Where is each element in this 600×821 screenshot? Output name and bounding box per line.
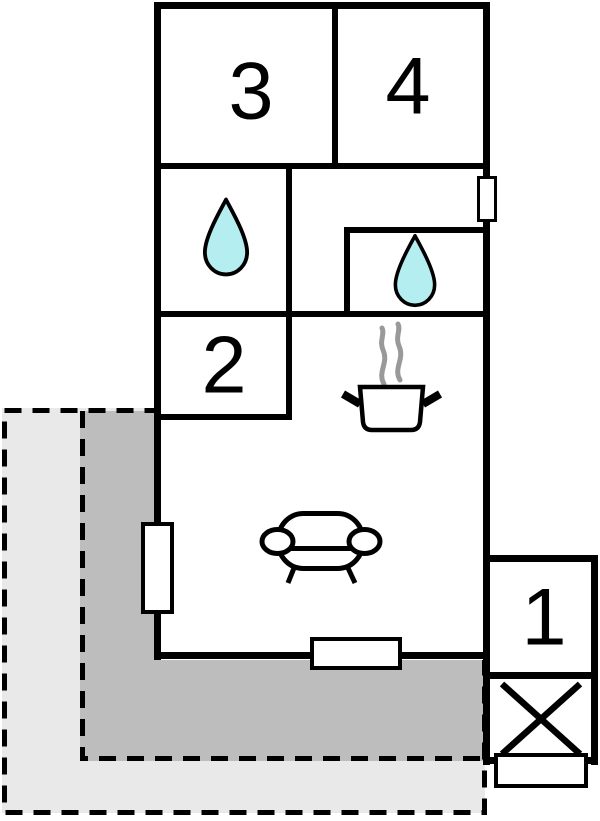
room-label-2: 2 — [201, 326, 246, 407]
room-label-4: 4 — [385, 47, 430, 128]
wall-room2-bottom — [158, 414, 292, 420]
floorplan-canvas: 3 4 2 1 — [0, 0, 600, 821]
wall-room2-right — [286, 311, 292, 420]
wall-room1-right — [591, 555, 598, 765]
wall-room3-room4-divider — [332, 2, 338, 169]
cooking-pot-icon — [338, 320, 446, 432]
wall-mid-floor — [158, 311, 486, 317]
pot-body — [360, 387, 423, 430]
wall-room1-left — [483, 555, 490, 765]
wall-room1-bottom — [483, 672, 598, 679]
wall-bedrooms-floor — [158, 163, 486, 169]
sofa-leg-left — [288, 568, 294, 583]
wall-room1-top — [483, 555, 598, 562]
window-marker-right-wall — [477, 176, 497, 222]
wall-outer-top — [154, 2, 490, 9]
room-label-3: 3 — [228, 52, 273, 133]
steam-icon — [382, 324, 401, 384]
room-label-1: 1 — [521, 578, 566, 659]
wall-bathroom1-right — [286, 163, 292, 317]
water-drop-shape — [205, 200, 247, 275]
pot-handle-right — [423, 394, 440, 404]
door-marker-bottom-wall — [310, 637, 402, 670]
crossed-box-icon — [490, 679, 591, 759]
water-drop-icon — [202, 196, 250, 278]
water-drop-icon — [392, 233, 438, 308]
water-drop-shape — [395, 236, 434, 306]
sofa-armrest-right — [349, 530, 380, 554]
door-marker-left-wall — [141, 522, 174, 614]
sofa-icon — [256, 505, 386, 587]
wall-bathroom2-left — [344, 227, 350, 317]
sofa-armrest-left — [262, 530, 293, 554]
sofa-leg-right — [348, 568, 355, 583]
pot-handle-left — [343, 394, 360, 404]
